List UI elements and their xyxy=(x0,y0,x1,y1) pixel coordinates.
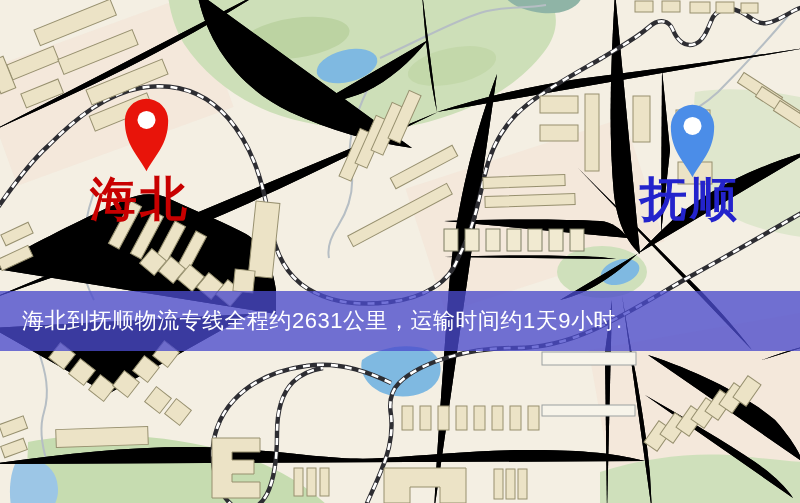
destination-pin-body xyxy=(671,105,714,177)
route-info-text: 海北到抚顺物流专线全程约2631公里，运输时间约1天9小时. xyxy=(0,291,800,351)
map-canvas[interactable] xyxy=(0,0,800,503)
destination-label: 抚顺 xyxy=(640,176,740,223)
destination-pin-icon[interactable] xyxy=(666,100,719,182)
destination-pin-hole xyxy=(683,117,701,135)
logistics-route-map: 海北 抚顺 海北到抚顺物流专线全程约2631公里，运输时间约1天9小时. xyxy=(0,0,800,503)
route-info-banner: 海北到抚顺物流专线全程约2631公里，运输时间约1天9小时. xyxy=(0,291,800,351)
origin-pin-hole xyxy=(137,111,155,129)
origin-label: 海北 xyxy=(90,176,190,223)
origin-pin-icon[interactable] xyxy=(120,94,173,176)
origin-pin-body xyxy=(125,99,168,171)
